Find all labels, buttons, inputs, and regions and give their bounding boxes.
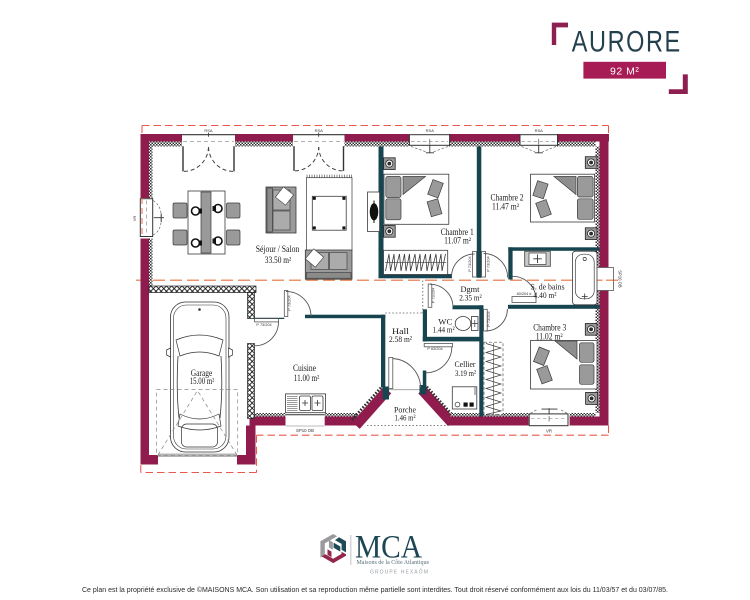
svg-text:33.50 m²: 33.50 m² bbox=[265, 255, 292, 265]
svg-text:3.19 m²: 3.19 m² bbox=[455, 368, 476, 378]
svg-text:11.02 m²: 11.02 m² bbox=[536, 331, 563, 341]
svg-text:RSA: RSA bbox=[535, 128, 544, 133]
svg-text:GROUPE HEXAÔM: GROUPE HEXAÔM bbox=[370, 569, 429, 576]
svg-text:1.46 m²: 1.46 m² bbox=[395, 413, 416, 423]
svg-text:P 73/204: P 73/204 bbox=[468, 256, 472, 271]
svg-text:80/204 d: 80/204 d bbox=[517, 292, 532, 296]
svg-text:SP10 OB: SP10 OB bbox=[296, 428, 314, 433]
svg-text:RSA: RSA bbox=[204, 128, 213, 133]
svg-text:RSA: RSA bbox=[315, 128, 324, 133]
svg-text:92 M²: 92 M² bbox=[610, 65, 639, 77]
svg-text:SP10 OB: SP10 OB bbox=[618, 270, 623, 288]
svg-text:Maisons de la Côte Atlantique: Maisons de la Côte Atlantique bbox=[356, 560, 429, 566]
svg-text:VR: VR bbox=[546, 429, 552, 434]
svg-text:15.00 m²: 15.00 m² bbox=[190, 376, 215, 386]
svg-text:4.40 m²: 4.40 m² bbox=[534, 290, 557, 300]
svg-text:P 63/204: P 63/204 bbox=[427, 347, 442, 351]
svg-text:P 73/204: P 73/204 bbox=[256, 323, 271, 327]
svg-text:P 73/204: P 73/204 bbox=[432, 288, 436, 303]
svg-text:11.47 m²: 11.47 m² bbox=[492, 201, 519, 211]
svg-text:11.07 m²: 11.07 m² bbox=[444, 236, 471, 246]
svg-text:11.00 m²: 11.00 m² bbox=[294, 373, 320, 383]
svg-text:1.44 m²: 1.44 m² bbox=[433, 325, 455, 335]
svg-text:Ce plan est la propriété exclu: Ce plan est la propriété exclusive de ©M… bbox=[82, 586, 668, 594]
svg-text:Cuisine: Cuisine bbox=[293, 363, 316, 373]
svg-text:VR: VR bbox=[132, 216, 137, 222]
svg-text:RSA: RSA bbox=[426, 128, 435, 133]
svg-text:P 73/204: P 73/204 bbox=[486, 256, 490, 271]
svg-text:P 73/204: P 73/204 bbox=[487, 311, 491, 326]
svg-text:2.35 m²: 2.35 m² bbox=[459, 293, 482, 303]
svg-text:AURORE: AURORE bbox=[572, 26, 682, 59]
svg-text:2.58 m²: 2.58 m² bbox=[389, 334, 412, 344]
svg-text:P 73/204: P 73/204 bbox=[288, 295, 292, 310]
svg-text:Séjour / Salon: Séjour / Salon bbox=[256, 244, 300, 254]
